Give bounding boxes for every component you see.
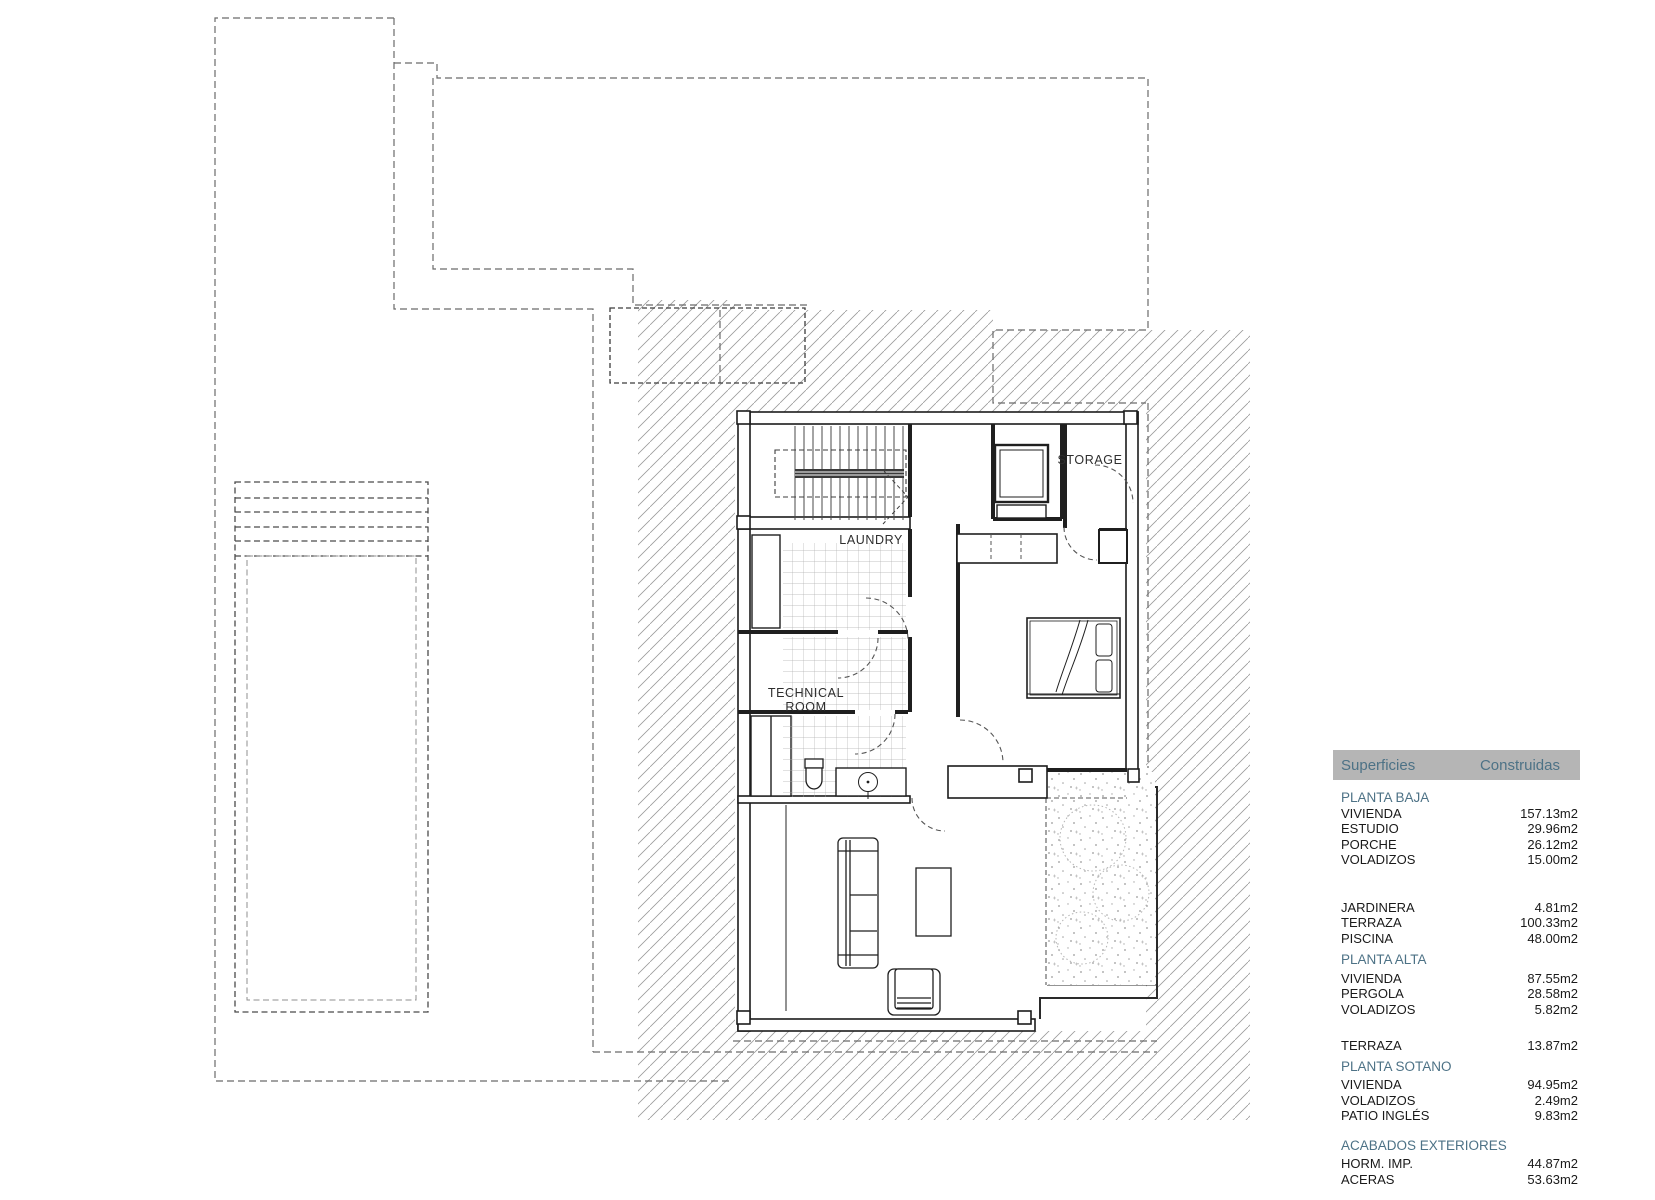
surfaces-table-header: Superficies Construidas: [1333, 750, 1580, 780]
technical-room-label-line1: TECHNICAL: [768, 686, 844, 700]
water-heater: [995, 445, 1048, 518]
surfaces-table: Superficies Construidas PLANTA BAJA VIVI…: [1333, 750, 1580, 1187]
table-row: VOLADIZOS5.82m2: [1341, 1002, 1580, 1018]
table-row: VOLADIZOS15.00m2: [1341, 852, 1580, 868]
pool: [235, 482, 428, 1012]
table-row: PORCHE26.12m2: [1341, 837, 1580, 853]
surfaces-header-col1: Superficies: [1341, 757, 1415, 774]
laundry-label: LAUNDRY: [839, 533, 903, 547]
closet: [957, 534, 1057, 563]
table-row: PISCINA48.00m2: [1341, 931, 1580, 947]
section-title-planta-alta: PLANTA ALTA: [1341, 952, 1580, 968]
coffee-table: [916, 868, 951, 936]
table-row: PERGOLA28.58m2: [1341, 986, 1580, 1002]
table-row: ESTUDIO29.96m2: [1341, 821, 1580, 837]
table-row: VIVIENDA94.95m2: [1341, 1077, 1580, 1093]
table-row: TERRAZA13.87m2: [1341, 1038, 1580, 1054]
storage-label: STORAGE: [1057, 453, 1122, 467]
toilet-icon: [805, 759, 823, 789]
table-row: HORM. IMP.44.87m2: [1341, 1156, 1580, 1172]
surfaces-header-col2: Construidas: [1480, 757, 1560, 774]
section-title-acabados: ACABADOS EXTERIORES: [1341, 1138, 1580, 1154]
table-row: PATIO INGLÉS9.83m2: [1341, 1108, 1580, 1124]
table-row: VIVIENDA87.55m2: [1341, 971, 1580, 987]
bed: [1027, 618, 1120, 698]
section-title-planta-baja: PLANTA BAJA: [1341, 790, 1580, 806]
patio-ingles: [1046, 772, 1155, 985]
table-row: TERRAZA100.33m2: [1341, 915, 1580, 931]
table-row: JARDINERA4.81m2: [1341, 900, 1580, 916]
floorplan-page: { "plan": { "labels": { "storage": "STOR…: [0, 0, 1655, 1200]
technical-room-label-line2: ROOM: [785, 700, 826, 714]
armchair: [888, 969, 940, 1015]
section-title-planta-sotano: PLANTA SOTANO: [1341, 1059, 1580, 1075]
bedroom-niche: [1099, 530, 1127, 563]
stair-handrail: [795, 469, 904, 478]
staircase: [775, 426, 908, 524]
table-row: VOLADIZOS2.49m2: [1341, 1093, 1580, 1109]
table-row: ACERAS53.63m2: [1341, 1172, 1580, 1188]
tiled-floors: [783, 543, 906, 797]
sofa: [838, 838, 878, 968]
table-row: VIVIENDA157.13m2: [1341, 806, 1580, 822]
